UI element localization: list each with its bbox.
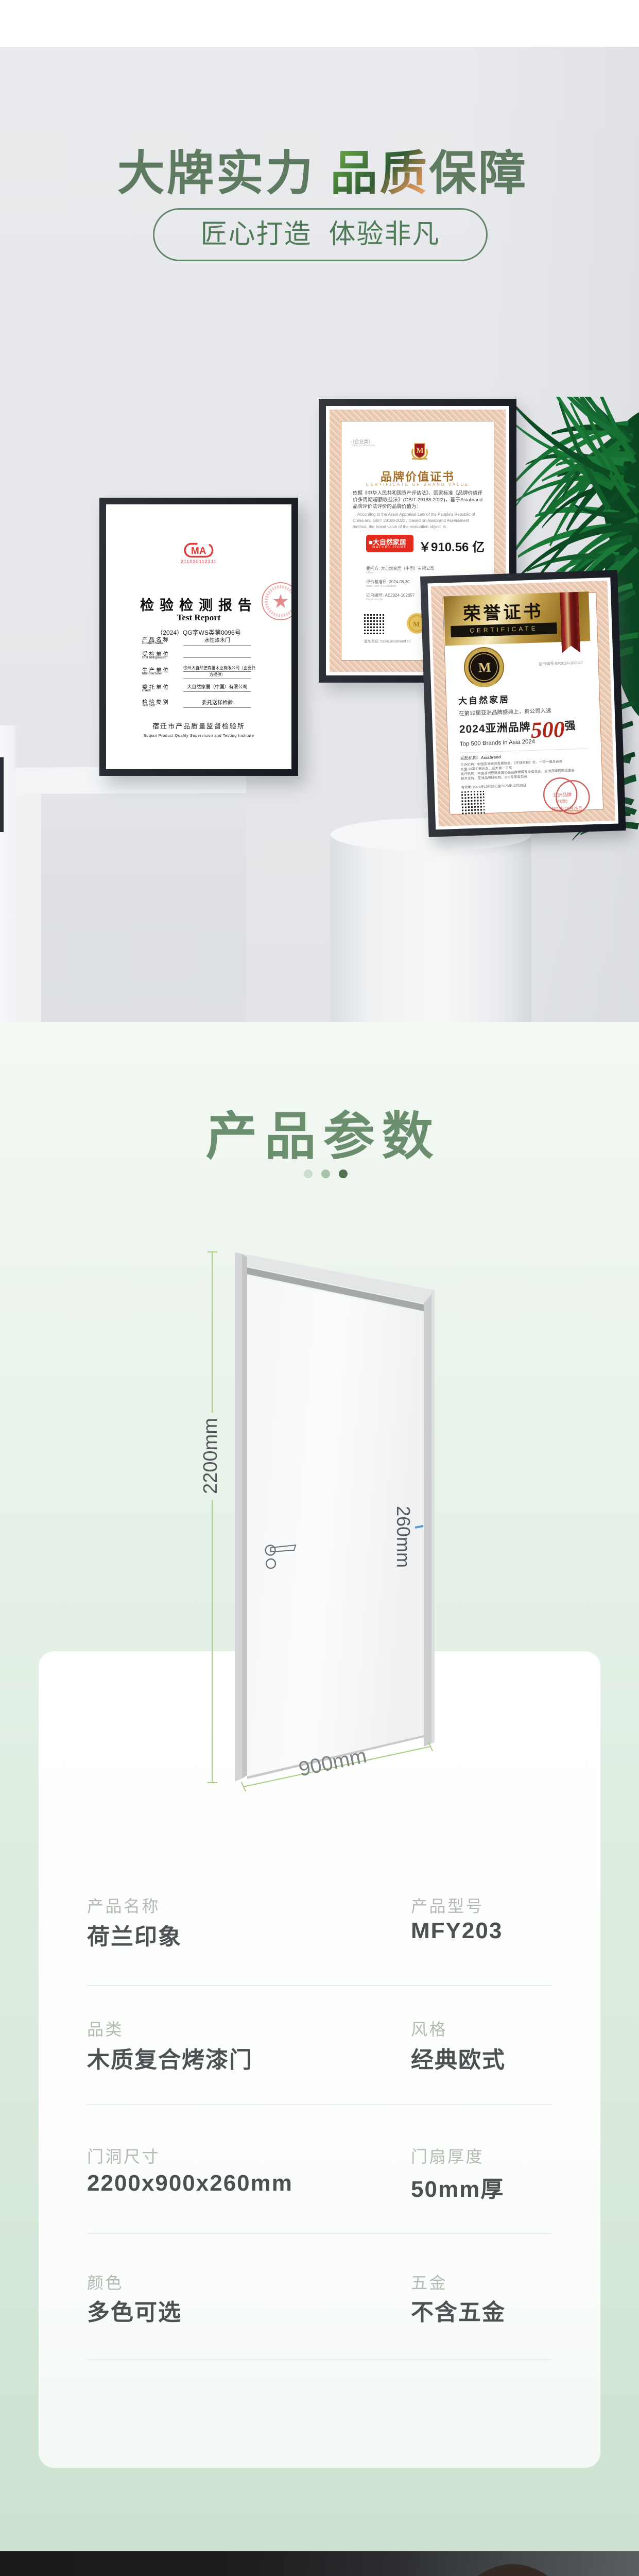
svg-text:MA: MA bbox=[191, 546, 206, 557]
svg-text:M: M bbox=[413, 621, 420, 629]
svg-text:M: M bbox=[417, 447, 424, 455]
svg-text:亚洲品牌: 亚洲品牌 bbox=[553, 791, 572, 798]
svg-text:M: M bbox=[478, 660, 491, 675]
svg-text:260mm: 260mm bbox=[393, 1506, 414, 1568]
svg-text:(代章): (代章) bbox=[556, 799, 567, 804]
svg-text:2200mm: 2200mm bbox=[200, 1418, 221, 1494]
svg-text:2024年10月26日: 2024年10月26日 bbox=[551, 805, 582, 811]
